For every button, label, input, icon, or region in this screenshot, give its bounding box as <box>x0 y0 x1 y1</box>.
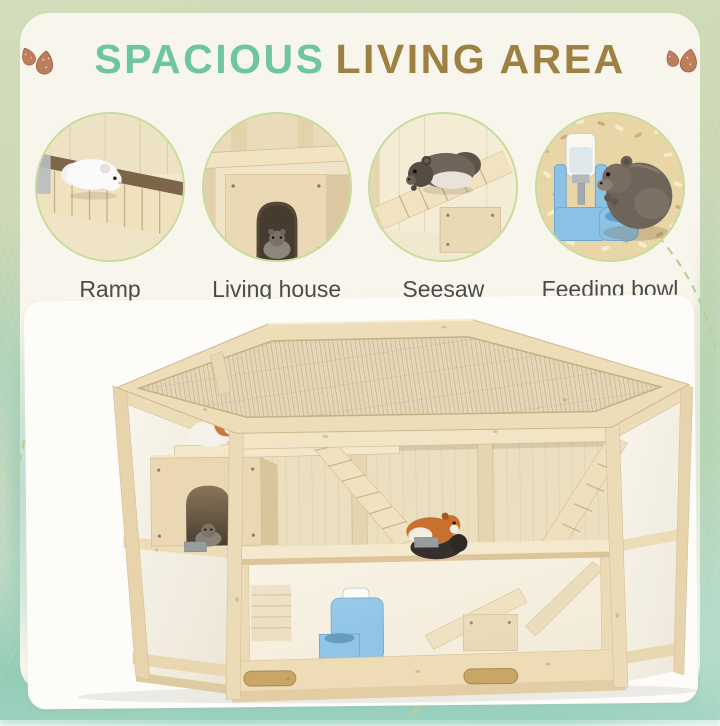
living-house <box>150 454 278 547</box>
ramp-photo <box>35 112 185 262</box>
title-part-teal: SPACIOUS <box>94 36 325 82</box>
feature-feeding-bowl: Feeding bowl <box>535 112 685 303</box>
drawer-handle <box>464 668 518 684</box>
feature-seesaw: Seesaw <box>368 112 518 303</box>
hinge <box>414 537 438 547</box>
page: SPACIOUSLIVING AREA <box>0 0 720 720</box>
feature-label: Ramp <box>79 276 140 303</box>
living-house-scene <box>204 114 350 260</box>
feature-ramp: Ramp <box>35 112 185 303</box>
feature-living-house: Living house <box>202 112 352 303</box>
feeding-bowl-scene <box>537 114 683 260</box>
product-photo <box>24 295 698 710</box>
almonds-icon <box>660 40 704 80</box>
feeding-bowl-photo <box>535 112 685 262</box>
living-house-photo <box>202 112 352 262</box>
hamster-cage-illustration <box>24 295 698 710</box>
seesaw-scene <box>370 114 516 260</box>
title-part-gold: LIVING AREA <box>335 36 625 82</box>
ramp-scene <box>37 114 183 260</box>
page-title: SPACIOUSLIVING AREA <box>94 36 625 83</box>
seesaw-photo <box>368 112 518 262</box>
hinge <box>184 542 206 552</box>
feature-row: Ramp <box>35 112 685 303</box>
almonds-icon <box>16 40 60 80</box>
page-header: SPACIOUSLIVING AREA <box>0 36 720 83</box>
